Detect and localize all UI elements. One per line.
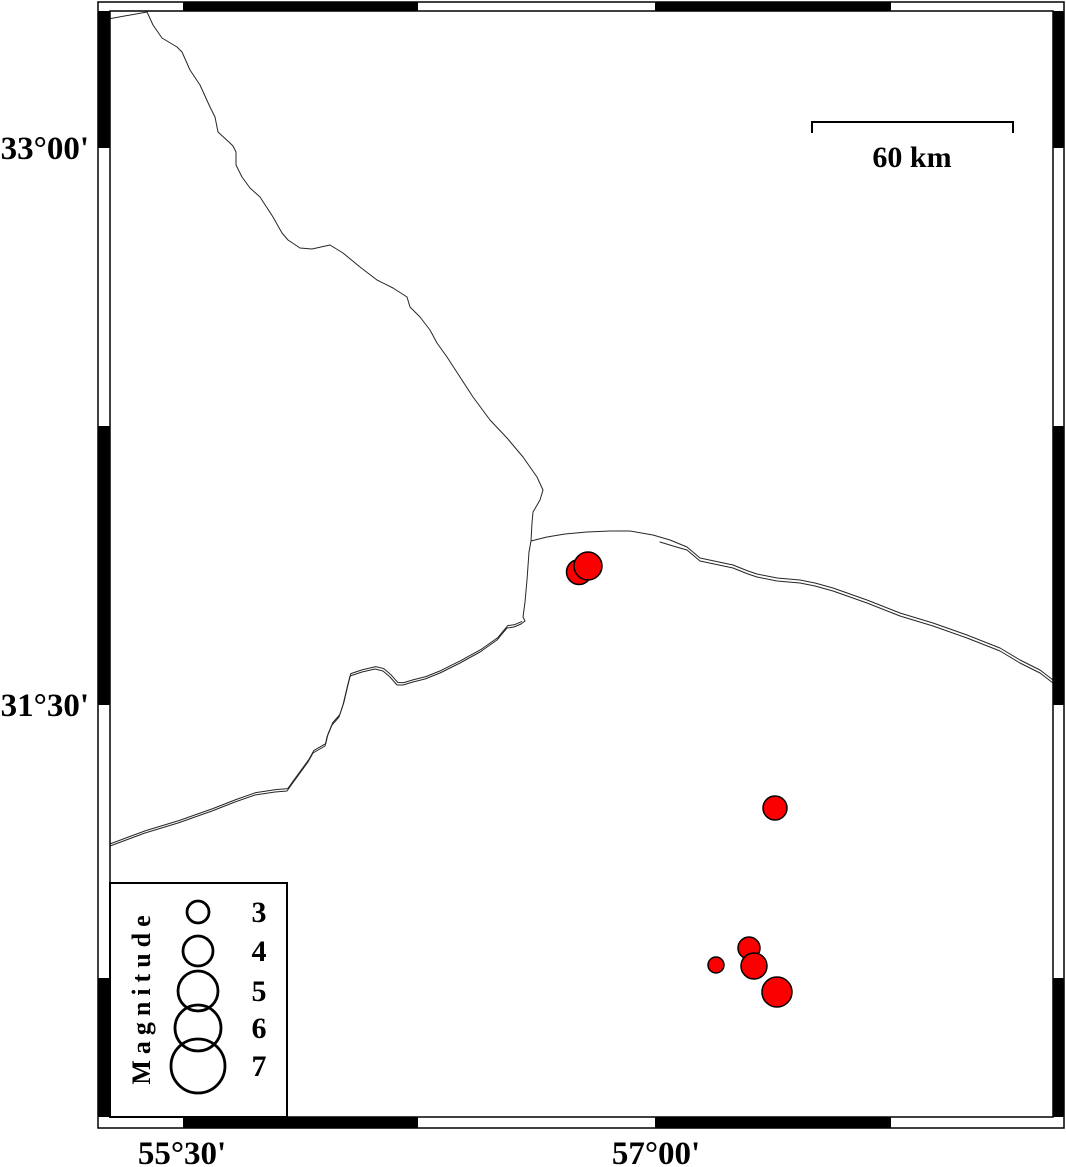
bottom-axis-label: 55°30' (138, 1136, 226, 1167)
legend-magnitude-value: 3 (252, 896, 267, 929)
scalebar-bracket (812, 122, 1013, 133)
coastline-coast-southwest (110, 624, 521, 846)
left-axis-label: 31°30' (1, 688, 89, 724)
earthquake-event-circle (762, 977, 792, 1007)
frame-right-black-segment (1053, 978, 1064, 1117)
legend-magnitude-value: 7 (252, 1050, 267, 1083)
legend-magnitude-value: 4 (252, 935, 267, 968)
legend-title: Magnitude (127, 909, 156, 1084)
legend-magnitude-value: 5 (252, 975, 267, 1008)
legend-group: Magnitude 34567 (110, 883, 287, 1117)
frame-left-black-segment (98, 978, 110, 1117)
frame-left-black-segment (98, 426, 110, 705)
frame-top-black-segment (655, 2, 891, 11)
frame-left-black-segment (98, 11, 110, 148)
coastline-coast-southwest-twin (111, 622, 522, 844)
earthquake-event-circle (763, 796, 787, 820)
frame-bottom-black-segment (655, 1117, 891, 1128)
coastline-boundary-northwest (108, 12, 543, 624)
earthquake-event-circle (574, 552, 602, 580)
map-svg: 33°00'31°30'55°30'57°00' 60 km Magnitude… (0, 0, 1066, 1167)
frame-right-black-segment (1053, 426, 1064, 705)
earthquake-event-circle (741, 953, 767, 979)
frame-top-black-segment (183, 2, 418, 11)
left-axis-label: 33°00' (1, 131, 89, 167)
earthquake-event-circle (708, 957, 724, 973)
legend-magnitude-value: 6 (252, 1012, 267, 1045)
scalebar-group: 60 km (812, 122, 1013, 174)
coastline-coast-east-twin (660, 542, 1053, 683)
events-layer (567, 552, 793, 1007)
coastline-coast-east (531, 531, 1053, 680)
coastlines-layer (108, 12, 1053, 846)
scalebar-label: 60 km (872, 141, 951, 174)
frame-right-black-segment (1053, 11, 1064, 148)
bottom-axis-label: 57°00' (612, 1136, 700, 1167)
frame-bottom-black-segment (183, 1117, 418, 1128)
